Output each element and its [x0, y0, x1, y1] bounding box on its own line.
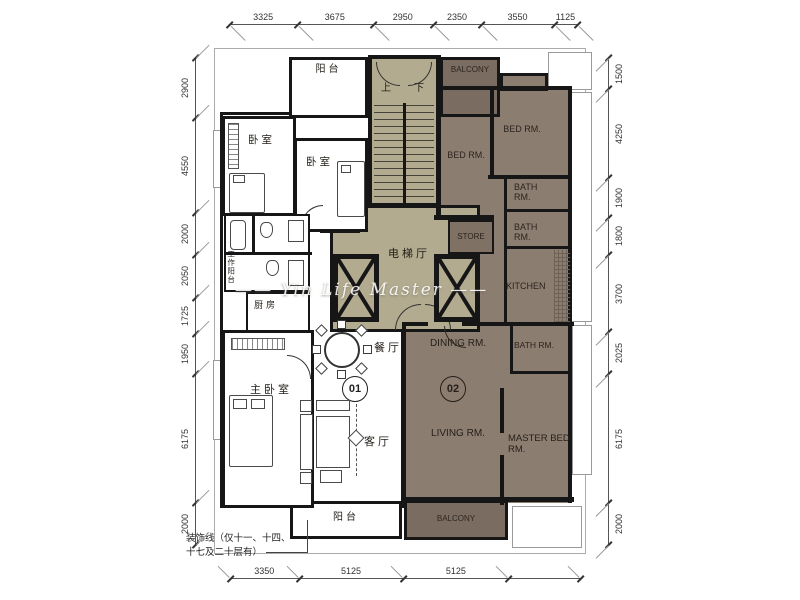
dim-label: 3550 — [481, 12, 554, 22]
dining-table — [324, 332, 360, 368]
note-leader-line — [266, 552, 308, 553]
door-arc — [376, 62, 400, 86]
dim-label: 2000 — [180, 224, 190, 244]
dim-label: 1800 — [614, 226, 624, 246]
note-leader-line — [307, 520, 308, 553]
dim-segment: 2950 — [373, 6, 433, 24]
unit1-kitchen-label: 厨房 — [254, 300, 278, 310]
unit2-bedroom-a-label: BED RM. — [437, 150, 495, 160]
dim-segment: 3700 — [609, 255, 629, 332]
dim-label: 3700 — [614, 284, 624, 304]
dim-segment: 6175 — [609, 374, 629, 503]
unit1-work-balcony-label: 工作阳台 — [226, 250, 235, 284]
elevator-hall-label: 电梯厅 — [381, 248, 437, 261]
store-label: STORE — [450, 232, 492, 241]
dim-label: 2900 — [180, 78, 190, 98]
dim-label: 2350 — [433, 12, 481, 22]
dimension-chain-bottom: 335051255125 — [230, 562, 580, 579]
chair — [363, 345, 372, 354]
balcony-top-unit1: 阳台 — [289, 57, 368, 118]
watermark: —— Yin Life Master —— — [235, 280, 575, 300]
chair — [337, 320, 346, 329]
dim-segment: 5125 — [299, 562, 404, 578]
wall — [436, 55, 441, 220]
dim-label: 1900 — [614, 188, 624, 208]
dim-label: 2025 — [614, 343, 624, 363]
dim-label: 2050 — [180, 266, 190, 286]
dim-segment: 2900 — [175, 58, 195, 118]
dim-label: 6175 — [614, 429, 624, 449]
wardrobe — [228, 123, 239, 169]
dim-segment: 1725 — [175, 298, 195, 334]
bay-window-right-lower — [572, 325, 592, 475]
unit1-bedroom-b-label: 卧室 — [306, 156, 333, 168]
dim-label: 1950 — [180, 344, 190, 364]
wall — [500, 388, 504, 433]
dim-label: 1500 — [614, 64, 624, 84]
balcony-bottom-unit2-label: BALCONY — [407, 514, 505, 523]
dim-label: 1725 — [180, 306, 190, 326]
unit2-bath-a-label: BATH RM. — [514, 182, 548, 203]
coffee-table — [316, 416, 350, 468]
balcony-bottom-unit2: BALCONY — [404, 500, 508, 540]
dim-segment: 4550 — [175, 118, 195, 213]
wall — [402, 497, 574, 502]
unit1-living-label: 客厅 — [364, 436, 392, 449]
wall — [462, 322, 574, 326]
unit2-bath-b-label: BATH RM. — [514, 222, 548, 243]
dim-segment: 2025 — [609, 332, 629, 374]
note-line1: 装饰线（仅十一、十四、 — [186, 532, 306, 546]
balcony-bottom-unit1-label: 阳台 — [293, 512, 399, 524]
unit1-master-bedroom-label: 主卧室 — [250, 384, 292, 397]
door-arc — [408, 62, 432, 86]
wall — [490, 88, 494, 178]
dim-segment: 6175 — [175, 374, 195, 503]
dim-segment: 1900 — [609, 178, 629, 218]
dim-label: 3325 — [229, 12, 297, 22]
side-table — [300, 472, 312, 484]
stair-divider — [403, 103, 406, 203]
unit2-living-label: LIVING RM. — [418, 428, 498, 440]
chair — [312, 345, 321, 354]
dimension-chain-top: 332536752950235035501125 — [229, 6, 577, 25]
toilet — [260, 222, 273, 238]
dim-tick — [505, 575, 512, 582]
bathtub — [230, 220, 246, 250]
dim-segment: 1950 — [175, 334, 195, 375]
unit1-badge: 01 — [342, 376, 368, 402]
wall — [510, 371, 572, 374]
sofa — [316, 400, 350, 411]
dim-tick — [192, 54, 199, 61]
wall — [504, 246, 572, 249]
floor-plan-canvas: 阳台 BALCONY 阳台 BALCONY 上 下 电梯厅 储物 — [0, 0, 800, 600]
dim-segment: 3350 — [230, 562, 299, 578]
side-table — [300, 400, 312, 412]
wardrobe — [231, 338, 285, 350]
wall — [488, 175, 572, 179]
wall — [504, 209, 572, 212]
wall — [436, 86, 572, 90]
pillow — [233, 175, 245, 183]
dim-segment: 2000 — [175, 213, 195, 255]
dim-segment — [508, 562, 580, 578]
dim-label: 6175 — [180, 429, 190, 449]
stairs-up-label: 上 — [381, 83, 391, 95]
unit2-master-bedroom-label: MASTER BED RM. — [508, 434, 572, 456]
unit2-badge: 02 — [440, 376, 466, 402]
dim-label: 4550 — [180, 156, 190, 176]
dim-label: 3675 — [297, 12, 372, 22]
dim-segment: 2350 — [433, 6, 481, 24]
dim-segment: 3550 — [481, 6, 554, 24]
dim-segment: 2000 — [609, 503, 629, 545]
door-arc — [395, 304, 421, 330]
dim-segment: 2050 — [175, 255, 195, 298]
dim-segment: 3325 — [229, 6, 297, 24]
unit2-bedroom-b-label: BED RM. — [496, 124, 548, 134]
wall — [252, 216, 255, 252]
dimension-chain-right: 15004250190018003700202561752000 — [608, 58, 629, 545]
pillow — [251, 399, 265, 409]
dim-label: 2950 — [373, 12, 433, 22]
bay-window-top-right — [548, 52, 592, 90]
dim-tick — [400, 575, 407, 582]
dim-tick — [577, 575, 584, 582]
wall — [402, 323, 406, 503]
dim-segment: 1800 — [609, 218, 629, 256]
sofa — [300, 414, 313, 470]
unit1-bedroom-a-label: 卧室 — [248, 134, 275, 146]
dim-label: 2000 — [180, 514, 190, 534]
dim-label: 2000 — [614, 514, 624, 534]
unit1-bedroom-a — [222, 116, 296, 216]
dim-segment: 5125 — [403, 562, 508, 578]
stairwell: 上 下 — [368, 55, 440, 207]
pillow — [233, 399, 247, 409]
wall — [504, 178, 507, 325]
dim-segment: 1500 — [609, 58, 629, 89]
unit2-bath-c-label: BATH RM. — [514, 341, 570, 351]
store-room: STORE — [448, 220, 494, 254]
note-line2: 十七及二十层有） — [186, 546, 306, 560]
unit1-dining-label: 餐厅 — [374, 342, 402, 355]
dim-label: 5125 — [403, 566, 508, 576]
toilet — [266, 260, 279, 276]
balcony-top-unit2-label: BALCONY — [443, 65, 497, 74]
dim-label: 4250 — [614, 124, 624, 144]
wall — [510, 325, 513, 373]
dim-segment: 4250 — [609, 89, 629, 178]
balcony-top-unit1-label: 阳台 — [292, 64, 365, 76]
armchair — [320, 470, 342, 483]
door-arc — [287, 355, 311, 379]
dim-segment: 2000 — [175, 503, 195, 545]
chair — [337, 370, 346, 379]
dim-segment: 3675 — [297, 6, 372, 24]
wall — [226, 252, 312, 255]
bay-bottom-right — [512, 506, 582, 548]
dimension-chain-left: 29004550200020501725195061752000 — [175, 58, 196, 545]
shower — [288, 220, 304, 242]
pillow — [341, 165, 351, 173]
dim-label: 5125 — [299, 566, 404, 576]
